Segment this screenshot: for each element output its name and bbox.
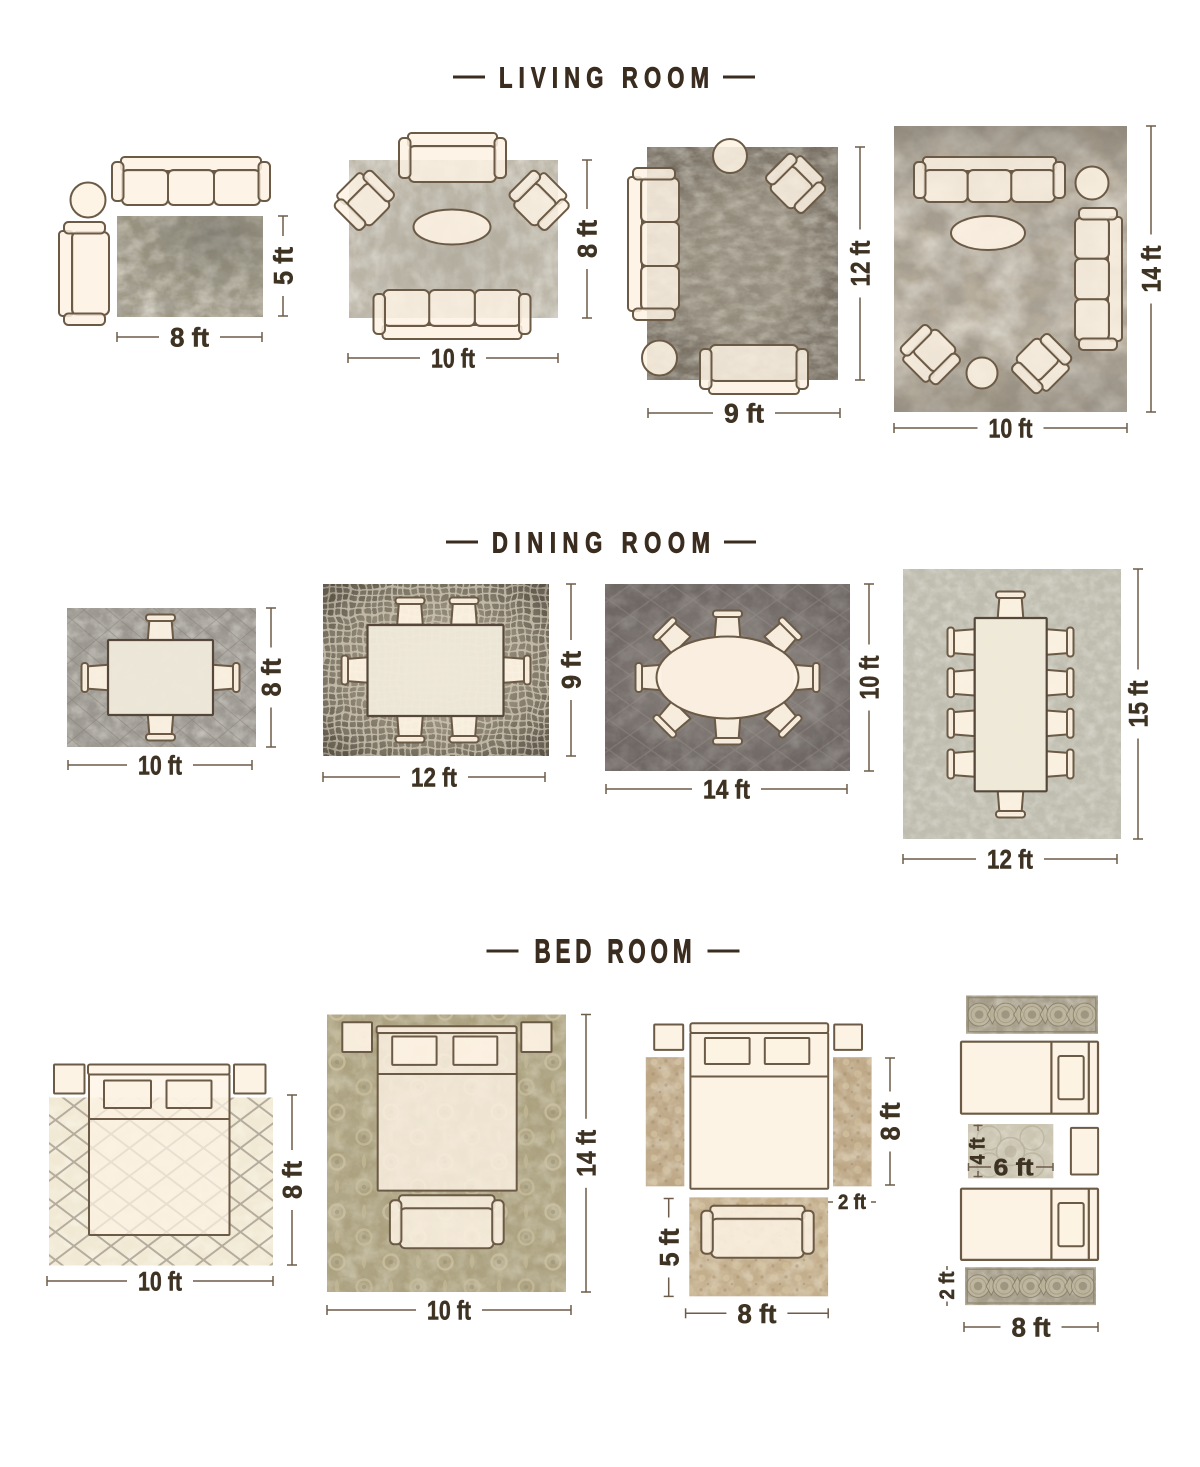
svg-text:10 ft: 10 ft — [138, 751, 182, 781]
svg-text:8 ft: 8 ft — [1012, 1313, 1051, 1343]
svg-text:2 ft: 2 ft — [838, 1191, 866, 1214]
svg-text:10 ft: 10 ft — [431, 344, 475, 374]
svg-text:8 ft: 8 ft — [278, 1161, 308, 1199]
svg-text:BED ROOM: BED ROOM — [534, 932, 691, 969]
svg-text:8 ft: 8 ft — [876, 1102, 906, 1140]
svg-text:10 ft: 10 ft — [989, 414, 1033, 444]
svg-text:12 ft: 12 ft — [846, 241, 876, 287]
svg-text:14 ft: 14 ft — [572, 1130, 602, 1177]
svg-text:2 ft: 2 ft — [936, 1271, 959, 1299]
svg-text:10 ft: 10 ft — [138, 1267, 182, 1297]
svg-text:10 ft: 10 ft — [427, 1296, 471, 1326]
svg-text:9 ft: 9 ft — [557, 651, 587, 689]
svg-text:14 ft: 14 ft — [1137, 246, 1167, 293]
svg-text:9 ft: 9 ft — [724, 399, 764, 429]
svg-text:12 ft: 12 ft — [411, 763, 457, 793]
svg-text:8 ft: 8 ft — [257, 658, 287, 696]
svg-text:10 ft: 10 ft — [855, 656, 885, 700]
svg-text:14 ft: 14 ft — [703, 775, 750, 805]
svg-text:15 ft: 15 ft — [1124, 681, 1154, 728]
svg-text:8 ft: 8 ft — [573, 220, 603, 258]
svg-text:6 ft: 6 ft — [994, 1155, 1034, 1182]
svg-text:4 ft: 4 ft — [967, 1137, 990, 1164]
svg-text:5 ft: 5 ft — [654, 1228, 684, 1266]
svg-text:5 ft: 5 ft — [269, 247, 299, 285]
svg-text:8 ft: 8 ft — [170, 323, 209, 353]
svg-text:8 ft: 8 ft — [737, 1299, 776, 1329]
svg-text:12 ft: 12 ft — [987, 845, 1033, 875]
